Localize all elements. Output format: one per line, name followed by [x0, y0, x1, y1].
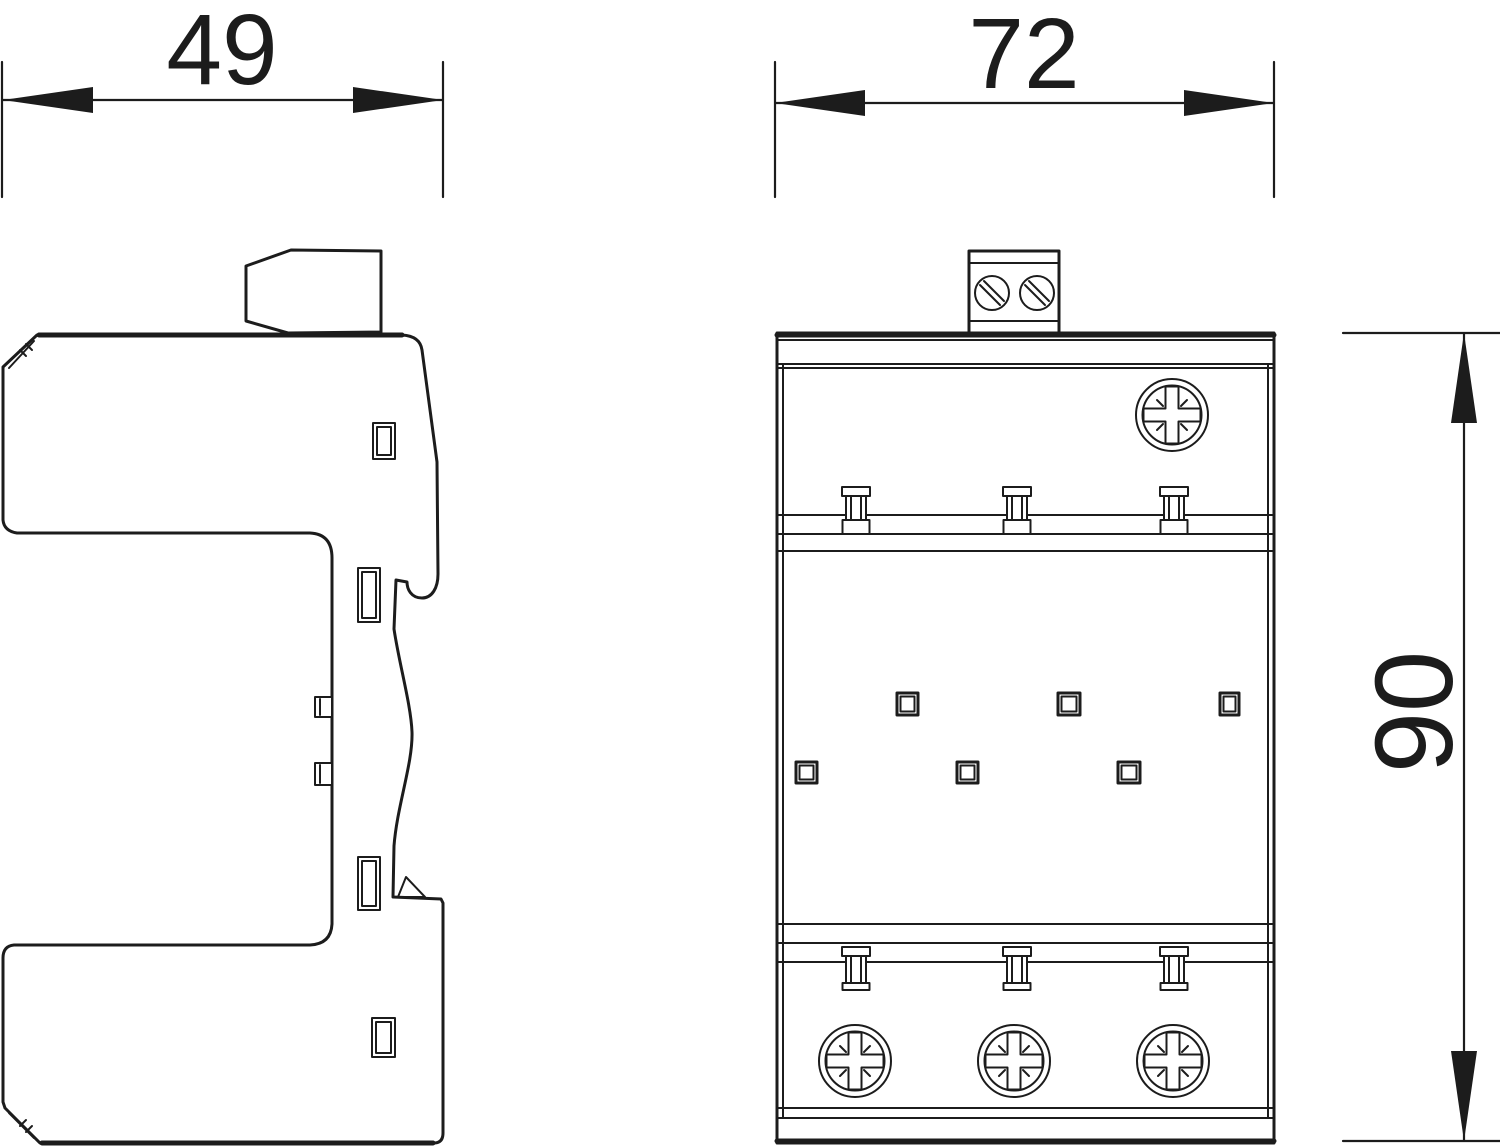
side-clip-window-1	[373, 423, 395, 459]
dimension-label: 90	[1353, 651, 1476, 773]
arrowhead-left-icon	[3, 87, 93, 113]
side-tab-2	[315, 763, 332, 785]
front-terminal-block	[969, 251, 1059, 335]
front-view	[777, 251, 1274, 1143]
phillips-screw-icon	[978, 1025, 1050, 1097]
arrowhead-top-icon	[1451, 333, 1477, 423]
technical-drawing: 49 72 90	[0, 0, 1500, 1146]
phillips-screw-icon	[1136, 379, 1208, 451]
arrowhead-right-icon	[353, 87, 443, 113]
din-latch	[1003, 947, 1031, 990]
side-din-clip-top	[9, 341, 34, 368]
terminal-screw-icon	[975, 276, 1009, 310]
phillips-screw-icon	[1137, 1025, 1209, 1097]
side-clip-window-2	[358, 568, 380, 622]
side-clip-window-4	[372, 1018, 395, 1057]
front-body-outline	[777, 333, 1274, 1143]
dimension-side-width: 49	[2, 0, 443, 197]
dimension-label: 49	[166, 0, 277, 106]
side-din-clip-bottom	[9, 1113, 34, 1138]
technical-drawing-page: 49 72 90	[0, 0, 1500, 1146]
arrowhead-right-icon	[1184, 90, 1274, 116]
din-latch	[1003, 487, 1031, 534]
din-latch	[842, 487, 870, 534]
din-latch	[842, 947, 870, 990]
din-latch	[1160, 487, 1188, 534]
arrowhead-bottom-icon	[1451, 1051, 1477, 1141]
arrowhead-left-icon	[775, 90, 865, 116]
side-tab-1	[315, 697, 332, 717]
phillips-screw-icon	[819, 1025, 891, 1097]
din-latch	[1160, 947, 1188, 990]
terminal-screw-icon	[1020, 276, 1054, 310]
side-clip-window-3	[358, 857, 380, 910]
dimension-front-width: 72	[775, 0, 1274, 197]
side-view	[3, 250, 443, 1143]
dimension-front-height: 90	[1343, 333, 1500, 1141]
dimension-label: 72	[968, 0, 1079, 110]
side-terminal-block	[246, 250, 381, 333]
side-gusset	[398, 877, 425, 897]
